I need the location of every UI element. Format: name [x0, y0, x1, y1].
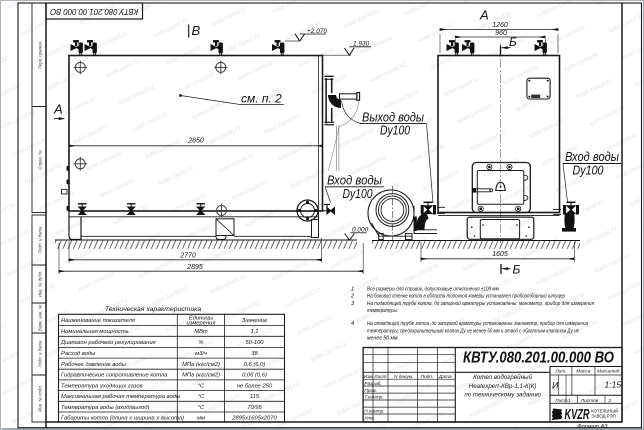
svg-text:Лист: Лист [373, 374, 386, 380]
svg-text:Подп. и дата: Подп. и дата [38, 226, 43, 254]
svg-text:Справ. №: Справ. № [38, 150, 43, 170]
svg-text:измерения: измерения [186, 321, 215, 327]
svg-text:Температура воды (вход/выход): Температура воды (вход/выход) [61, 405, 150, 411]
svg-text:Взам. инв. №: Взам. инв. № [38, 304, 43, 331]
svg-text:N докум.: N докум. [394, 374, 413, 380]
svg-text:Выход воды: Выход воды [362, 110, 424, 124]
svg-text:Техническая характеристика: Техническая характеристика [105, 306, 201, 313]
svg-text:Максимальная рабочая температу: Максимальная рабочая температура воды [61, 394, 181, 400]
svg-text:Т.контр.: Т.контр. [364, 395, 383, 401]
svg-text:Номинальная мощность: Номинальная мощность [61, 329, 129, 335]
svg-text:МПа (кгс/см2): МПа (кгс/см2) [182, 362, 220, 368]
svg-text:0,06 (0,6): 0,06 (0,6) [242, 373, 267, 379]
svg-text:КВТУ.080.201.00.000 ВО: КВТУ.080.201.00.000 ВО [463, 349, 614, 366]
svg-text:Изм: Изм [364, 374, 374, 380]
svg-text:50-100: 50-100 [245, 340, 264, 346]
svg-text:не более 250: не более 250 [237, 383, 273, 389]
svg-text:38: 38 [251, 351, 258, 357]
svg-text:по техническому заданию: по техническому заданию [464, 391, 541, 398]
svg-text:Dy100: Dy100 [380, 124, 410, 138]
svg-text:Dy100: Dy100 [573, 163, 604, 177]
svg-text:Б: Б [509, 35, 517, 49]
svg-text:Лист: Лист [554, 398, 567, 404]
svg-text:Инв. № подл.: Инв. № подл. [38, 385, 43, 412]
svg-text:Н.контр.: Н.контр. [364, 409, 384, 415]
svg-text:На подводящей трубе котла, д: На подводящей трубе котла, до запорной а… [367, 300, 594, 307]
svg-text:Б: Б [513, 263, 521, 277]
svg-text:Диапазон рабочего регулировани: Диапазон рабочего регулирования [60, 340, 156, 346]
svg-text:Heatexpert-КВр-1,1-К(К): Heatexpert-КВр-1,1-К(К) [469, 383, 537, 390]
svg-text:°С: °С [198, 405, 205, 411]
svg-text:2770: 2770 [179, 252, 196, 259]
svg-text:КВТУ.080.201.00.000 ВО: КВТУ.080.201.00.000 ВО [50, 7, 138, 16]
svg-text:В: В [192, 23, 201, 38]
svg-text:см. п. 2: см. п. 2 [241, 92, 282, 106]
svg-text:Dy100: Dy100 [343, 187, 373, 201]
svg-text:°С: °С [198, 394, 205, 400]
svg-text:Формат А3: Формат А3 [577, 424, 608, 430]
svg-text:Расход воды: Расход воды [61, 351, 96, 357]
svg-text:1.930: 1.930 [353, 41, 370, 48]
svg-text:4: 4 [351, 321, 354, 327]
svg-text:Подп.: Подп. [421, 374, 434, 380]
svg-text:Лит.: Лит. [554, 369, 566, 375]
svg-text:менее 50 мм.: менее 50 мм. [367, 336, 399, 342]
svg-text:70/95: 70/95 [247, 405, 262, 411]
svg-text:1: 1 [351, 287, 354, 293]
svg-text:Масса: Масса [576, 369, 591, 375]
svg-text:1605: 1605 [492, 251, 508, 258]
svg-text:2895: 2895 [186, 264, 203, 271]
svg-text:Рабочее давление воды: Рабочее давление воды [61, 362, 127, 368]
svg-text:м3/ч: м3/ч [195, 351, 207, 357]
svg-text:2650: 2650 [187, 138, 204, 145]
svg-text:Пров.: Пров. [364, 388, 377, 394]
svg-text:Инв. № дубл.: Инв. № дубл. [38, 271, 43, 297]
svg-text:Гидравлическое сопротивление к: Гидравлическое сопротивление котла [61, 373, 168, 379]
svg-text:Вход воды: Вход воды [565, 150, 619, 164]
svg-text:1260: 1260 [492, 22, 508, 29]
svg-text:Температура уходящих газов: Температура уходящих газов [61, 383, 143, 389]
svg-text:ЗАВОД РЭП: ЗАВОД РЭП [591, 414, 616, 419]
svg-text:Наименование показателя: Наименование показателя [61, 318, 135, 324]
svg-text:На отводящей трубе котла ,до з: На отводящей трубе котла ,до запорной ар… [367, 320, 588, 327]
svg-text:960: 960 [495, 30, 507, 37]
svg-text:%: % [198, 340, 203, 346]
svg-text:1:15: 1:15 [605, 380, 622, 390]
svg-text:Габариты котла (длина х ширина: Габариты котла (длина х ширина х высота) [61, 416, 184, 422]
svg-text:2: 2 [608, 398, 612, 404]
svg-text:KVZR: KVZR [565, 407, 590, 423]
svg-text:115: 115 [250, 394, 260, 400]
svg-text:Листов: Листов [580, 398, 599, 404]
svg-text:А: А [479, 8, 489, 23]
svg-text:Перв. примен.: Перв. примен. [38, 41, 43, 70]
svg-text:Дата: Дата [438, 374, 452, 380]
svg-text:°С: °С [198, 383, 205, 389]
svg-text:температуры, предохранительный: температуры, предохранительный клапан Ду… [367, 327, 580, 334]
svg-text:МПа (кгс/см2): МПа (кгс/см2) [182, 373, 220, 379]
svg-text:Подп. и дата: Подп. и дата [38, 340, 43, 368]
svg-text:1: 1 [568, 398, 571, 404]
svg-text:Масштаб: Масштаб [597, 369, 620, 375]
svg-text:температуры.: температуры. [367, 308, 398, 314]
svg-text:На боковой стенке котла в обла: На боковой стенке котла в области топочн… [367, 293, 566, 300]
svg-text:Вход воды: Вход воды [327, 174, 382, 188]
svg-text:Разраб.: Разраб. [364, 381, 381, 387]
svg-text:Значение: Значение [242, 318, 268, 324]
svg-text:И: И [552, 380, 559, 390]
svg-text:Утв.: Утв. [364, 416, 375, 422]
svg-text:2895х1605х2070: 2895х1605х2070 [231, 416, 277, 422]
svg-text:Все размеры для справок, допус: Все размеры для справок, допустимые откл… [367, 287, 500, 293]
svg-text:А: А [53, 102, 63, 117]
svg-text:0,6 (6,0): 0,6 (6,0) [244, 362, 266, 368]
svg-text:1,1: 1,1 [250, 329, 258, 335]
svg-text:+2.070: +2.070 [307, 28, 327, 35]
svg-text:МВт: МВт [194, 329, 208, 335]
svg-text:мм: мм [197, 416, 205, 422]
svg-text:Котел водогрейный: Котел водогрейный [473, 374, 532, 381]
